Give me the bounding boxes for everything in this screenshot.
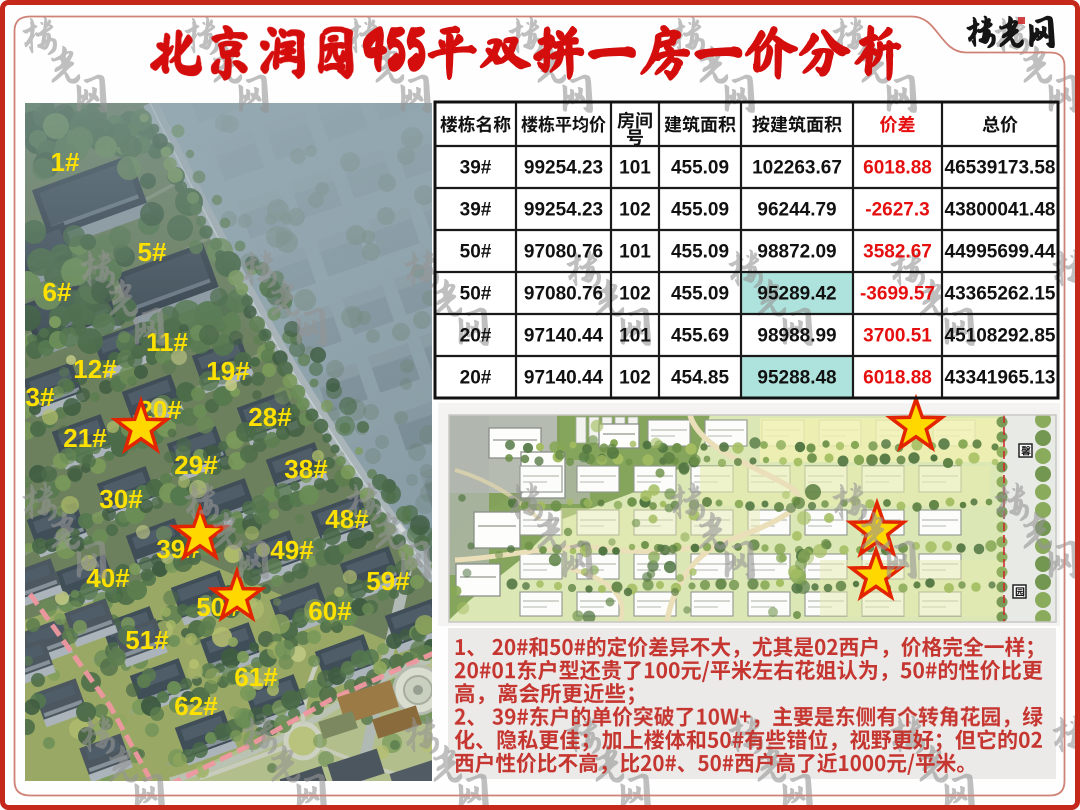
svg-text:49#: 49#: [270, 535, 314, 565]
svg-text:5#: 5#: [138, 237, 167, 267]
svg-text:97080.76: 97080.76: [524, 242, 603, 263]
svg-text:1#: 1#: [51, 147, 80, 177]
svg-text:97140.44: 97140.44: [524, 326, 604, 347]
svg-text:20#: 20#: [460, 368, 492, 389]
svg-text:39#: 39#: [460, 200, 492, 221]
svg-text:96244.79: 96244.79: [757, 200, 836, 221]
svg-text:95289.42: 95289.42: [757, 284, 836, 305]
svg-text:20#: 20#: [460, 326, 492, 347]
svg-text:101: 101: [619, 326, 651, 347]
svg-text:455.69: 455.69: [671, 326, 729, 347]
svg-text:97140.44: 97140.44: [524, 368, 604, 389]
svg-text:102: 102: [619, 200, 651, 221]
svg-text:455.09: 455.09: [671, 200, 729, 221]
svg-text:50#: 50#: [460, 284, 492, 305]
svg-text:101: 101: [619, 158, 651, 179]
svg-text:28#: 28#: [248, 402, 292, 432]
svg-text:43800041.48: 43800041.48: [945, 200, 1056, 221]
svg-text:455.09: 455.09: [671, 242, 729, 263]
svg-text:102: 102: [619, 284, 651, 305]
svg-text:45108292.85: 45108292.85: [945, 326, 1056, 347]
svg-text:62#: 62#: [174, 691, 218, 721]
svg-text:51#: 51#: [125, 625, 169, 655]
svg-text:95288.48: 95288.48: [757, 368, 836, 389]
svg-text:3#: 3#: [26, 382, 55, 412]
svg-text:39#: 39#: [460, 158, 492, 179]
svg-text:102263.67: 102263.67: [752, 158, 842, 179]
svg-text:97080.76: 97080.76: [524, 284, 603, 305]
svg-text:40#: 40#: [86, 563, 130, 593]
svg-text:48#: 48#: [325, 504, 369, 534]
svg-text:6018.88: 6018.88: [863, 368, 932, 389]
svg-text:61#: 61#: [234, 662, 278, 692]
svg-text:38#: 38#: [284, 454, 328, 484]
svg-text:102: 102: [619, 368, 651, 389]
svg-text:455.09: 455.09: [671, 284, 729, 305]
svg-text:101: 101: [619, 242, 651, 263]
svg-text:44995699.44: 44995699.44: [945, 242, 1056, 263]
svg-text:99254.23: 99254.23: [524, 200, 603, 221]
svg-text:43341965.13: 43341965.13: [945, 368, 1056, 389]
svg-text:46539173.58: 46539173.58: [945, 158, 1056, 179]
svg-text:6#: 6#: [43, 277, 72, 307]
svg-text:29#: 29#: [174, 450, 218, 480]
svg-text:-3699.57: -3699.57: [860, 284, 935, 305]
svg-text:19#: 19#: [206, 356, 250, 386]
svg-text:3582.67: 3582.67: [863, 242, 932, 263]
svg-text:21#: 21#: [63, 423, 107, 453]
svg-text:50#: 50#: [460, 242, 492, 263]
svg-text:60#: 60#: [308, 596, 352, 626]
svg-text:12#: 12#: [73, 354, 117, 384]
svg-text:30#: 30#: [99, 484, 143, 514]
svg-text:98988.99: 98988.99: [757, 326, 836, 347]
svg-text:3700.51: 3700.51: [863, 326, 932, 347]
svg-text:455.09: 455.09: [671, 158, 729, 179]
svg-text:99254.23: 99254.23: [524, 158, 603, 179]
svg-text:98872.09: 98872.09: [757, 242, 836, 263]
svg-text:6018.88: 6018.88: [863, 158, 932, 179]
svg-text:43365262.15: 43365262.15: [945, 284, 1056, 305]
svg-text:454.85: 454.85: [671, 368, 730, 389]
svg-text:-2627.3: -2627.3: [865, 200, 929, 221]
